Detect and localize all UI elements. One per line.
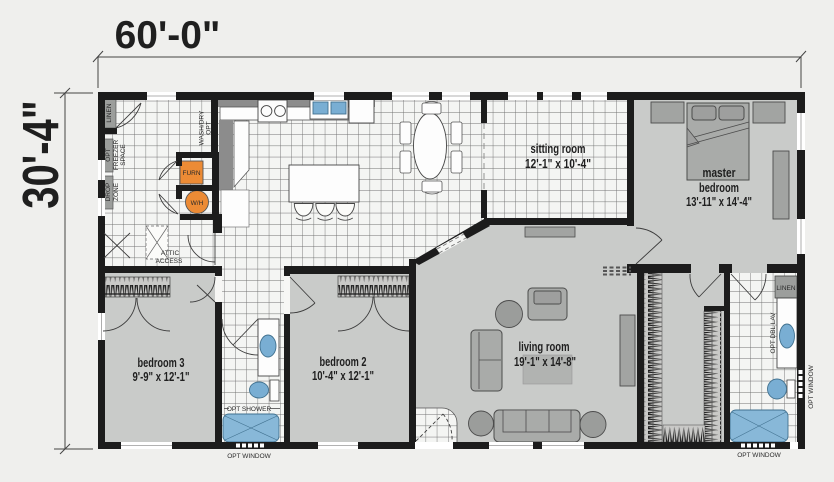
svg-text:sitting room: sitting room [531, 141, 586, 156]
svg-text:9'-9" x 12'-1": 9'-9" x 12'-1" [133, 369, 190, 384]
svg-text:bedroom: bedroom [699, 180, 739, 195]
svg-text:bedroom 3: bedroom 3 [138, 355, 185, 370]
svg-text:bedroom 2: bedroom 2 [320, 354, 367, 369]
svg-text:FREEZER: FREEZER [113, 140, 120, 171]
svg-text:OPT WINDOW: OPT WINDOW [808, 364, 815, 408]
svg-text:OPT: OPT [206, 121, 213, 134]
svg-text:W/H: W/H [191, 200, 204, 207]
svg-text:12'-1" x 10'-4": 12'-1" x 10'-4" [525, 156, 591, 171]
svg-text:OPT: OPT [105, 148, 112, 161]
svg-text:LINEN: LINEN [106, 103, 113, 122]
svg-text:living room: living room [519, 339, 570, 354]
svg-text:30'-4": 30'-4" [12, 100, 69, 208]
svg-text:60'-0": 60'-0" [115, 14, 221, 57]
svg-text:FURN: FURN [182, 170, 200, 177]
svg-text:ZONE: ZONE [113, 182, 120, 201]
svg-text:WASH/DRY: WASH/DRY [199, 110, 206, 145]
svg-text:OPT WINDOW: OPT WINDOW [737, 452, 781, 459]
svg-text:10'-4" x 12'-1": 10'-4" x 12'-1" [312, 368, 374, 383]
svg-text:13'-11" x 14'-4": 13'-11" x 14'-4" [686, 194, 752, 209]
svg-text:ATTIC: ATTIC [161, 250, 180, 257]
svg-text:ACCESS: ACCESS [156, 258, 183, 265]
svg-text:OPT WINDOW: OPT WINDOW [227, 453, 271, 460]
svg-text:SPACE: SPACE [120, 144, 127, 166]
svg-text:OPT SHOWER: OPT SHOWER [227, 406, 272, 413]
svg-text:19'-1" x 14'-8": 19'-1" x 14'-8" [514, 354, 576, 369]
svg-text:LINEN: LINEN [776, 285, 795, 292]
svg-text:master: master [703, 165, 736, 180]
svg-text:DROP: DROP [105, 183, 112, 202]
svg-text:OPT DBL LAV: OPT DBL LAV [770, 312, 777, 354]
